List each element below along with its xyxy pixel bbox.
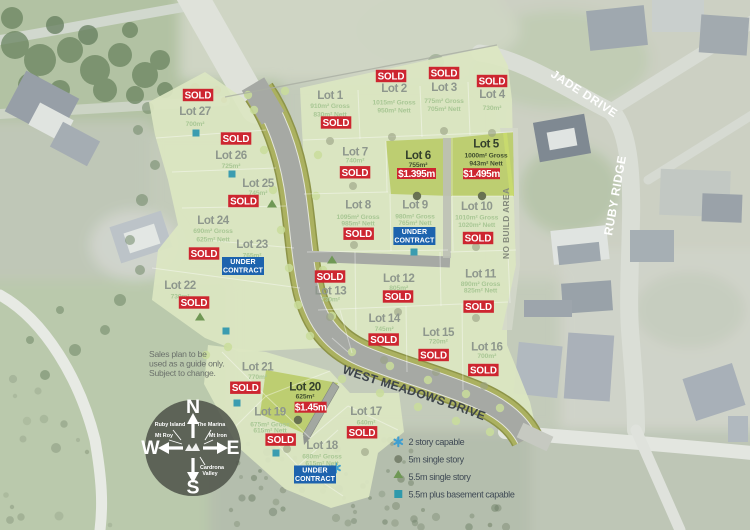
svg-text:950m² Nett: 950m² Nett	[377, 108, 411, 115]
svg-text:Lot 24: Lot 24	[197, 214, 229, 227]
svg-text:Lot 16: Lot 16	[471, 341, 503, 354]
svg-text:NO BUILD AREA: NO BUILD AREA	[501, 188, 511, 259]
svg-text:UNDER: UNDER	[230, 259, 255, 266]
svg-text:825m² Nett: 825m² Nett	[464, 288, 498, 295]
svg-text:640m²: 640m²	[357, 420, 377, 427]
svg-text:745m²: 745m²	[375, 326, 395, 333]
svg-text:Lot 20: Lot 20	[289, 381, 320, 394]
svg-text:SOLD: SOLD	[378, 72, 405, 83]
svg-text:SOLD: SOLD	[385, 292, 412, 303]
svg-text:Lot 8: Lot 8	[345, 199, 371, 212]
svg-text:5.5m single story: 5.5m single story	[409, 472, 472, 482]
svg-text:SOLD: SOLD	[191, 249, 218, 260]
svg-text:SOLD: SOLD	[370, 335, 397, 346]
svg-text:Lot 10: Lot 10	[461, 200, 492, 213]
svg-text:Ruby Island: Ruby Island	[155, 422, 186, 428]
svg-text:Lot 17: Lot 17	[350, 405, 381, 418]
svg-text:Lot 25: Lot 25	[242, 177, 274, 190]
svg-text:SOLD: SOLD	[479, 77, 506, 88]
svg-text:765m² Nett: 765m² Nett	[398, 220, 432, 227]
svg-text:1015m² Gross: 1015m² Gross	[372, 100, 415, 107]
svg-text:943m² Nett: 943m² Nett	[469, 161, 503, 168]
svg-text:5m single story: 5m single story	[409, 455, 465, 465]
svg-text:SOLD: SOLD	[470, 366, 497, 377]
svg-text:910m² Gross: 910m² Gross	[310, 103, 350, 110]
svg-text:740m²: 740m²	[346, 158, 366, 165]
svg-text:Lot 19: Lot 19	[254, 406, 286, 419]
svg-text:The Marina: The Marina	[197, 422, 226, 428]
svg-text:CONTRACT: CONTRACT	[223, 268, 264, 275]
svg-text:730m²: 730m²	[321, 297, 341, 304]
svg-text:Valley: Valley	[202, 471, 217, 477]
svg-text:UNDER: UNDER	[402, 229, 427, 236]
svg-text:SOLD: SOLD	[342, 168, 369, 179]
svg-text:CONTRACT: CONTRACT	[295, 476, 336, 483]
svg-text:Lot 2: Lot 2	[381, 82, 406, 95]
svg-text:SOLD: SOLD	[230, 197, 257, 208]
svg-text:SOLD: SOLD	[465, 302, 492, 313]
svg-text:SOLD: SOLD	[181, 298, 208, 309]
svg-text:W: W	[141, 437, 160, 459]
svg-text:SOLD: SOLD	[185, 91, 212, 102]
svg-text:680m² Gross: 680m² Gross	[302, 454, 342, 461]
svg-text:SOLD: SOLD	[431, 69, 458, 80]
svg-text:SOLD: SOLD	[323, 118, 350, 129]
svg-text:SOLD: SOLD	[345, 229, 372, 240]
svg-text:Mt Roy: Mt Roy	[155, 433, 173, 439]
svg-text:775m² Gross: 775m² Gross	[424, 98, 464, 105]
svg-text:Lot 22: Lot 22	[164, 279, 195, 292]
svg-text:N: N	[186, 396, 200, 418]
svg-text:Lot 14: Lot 14	[368, 312, 400, 325]
svg-text:S: S	[186, 477, 199, 499]
svg-text:625m²: 625m²	[296, 394, 316, 401]
svg-text:625m² Nett: 625m² Nett	[196, 237, 230, 244]
svg-text:SOLD: SOLD	[465, 234, 492, 245]
svg-text:770m²: 770m²	[248, 374, 268, 381]
svg-text:725m²: 725m²	[222, 163, 242, 170]
svg-text:SOLD: SOLD	[349, 428, 376, 439]
svg-text:Lot 4: Lot 4	[479, 88, 505, 101]
svg-text:UNDER: UNDER	[302, 468, 327, 475]
svg-text:1010m² Gross: 1010m² Gross	[455, 215, 498, 222]
svg-text:700m²: 700m²	[477, 353, 497, 360]
svg-text:$1.395m: $1.395m	[398, 169, 435, 180]
svg-text:Lot 1: Lot 1	[317, 89, 343, 102]
svg-text:Lot 6: Lot 6	[405, 149, 431, 162]
svg-text:Lot 5: Lot 5	[473, 138, 499, 151]
svg-text:SOLD: SOLD	[420, 351, 447, 362]
svg-text:Lot 26: Lot 26	[215, 149, 247, 162]
svg-text:$1.495m: $1.495m	[463, 169, 500, 180]
svg-text:used as a guide only.: used as a guide only.	[149, 359, 224, 369]
svg-text:Lot 21: Lot 21	[242, 360, 274, 373]
svg-text:Lot 15: Lot 15	[423, 326, 455, 339]
svg-text:Mt Iron: Mt Iron	[209, 433, 227, 439]
svg-text:Lot 9: Lot 9	[402, 199, 428, 212]
svg-text:Sales plan to be: Sales plan to be	[149, 349, 207, 359]
svg-text:700m²: 700m²	[186, 121, 206, 128]
svg-text:Lot 27: Lot 27	[179, 105, 210, 118]
svg-text:$1.45m: $1.45m	[295, 403, 327, 414]
svg-text:SOLD: SOLD	[223, 134, 250, 145]
svg-text:SOLD: SOLD	[232, 383, 259, 394]
svg-text:1000m² Gross: 1000m² Gross	[464, 153, 507, 160]
svg-text:730m²: 730m²	[483, 105, 503, 112]
svg-text:1020m² Nett: 1020m² Nett	[458, 222, 496, 229]
svg-text:Lot 3: Lot 3	[431, 81, 457, 94]
svg-text:CONTRACT: CONTRACT	[394, 238, 435, 245]
svg-text:SOLD: SOLD	[317, 272, 344, 283]
svg-text:Lot 23: Lot 23	[236, 238, 268, 251]
svg-text:720m²: 720m²	[429, 339, 449, 346]
svg-text:Subject to change.: Subject to change.	[149, 368, 216, 378]
svg-text:E: E	[226, 437, 239, 459]
svg-text:985m² Nett: 985m² Nett	[341, 221, 375, 228]
svg-text:690m² Gross: 690m² Gross	[193, 228, 233, 235]
svg-text:2 story capable: 2 story capable	[409, 437, 465, 447]
svg-text:5.5m plus basement capable: 5.5m plus basement capable	[409, 490, 515, 500]
svg-text:Lot 11: Lot 11	[465, 268, 497, 281]
svg-text:Lot 18: Lot 18	[306, 439, 338, 452]
svg-text:Lot 12: Lot 12	[383, 272, 414, 285]
svg-text:705m² Nett: 705m² Nett	[427, 106, 461, 113]
svg-text:SOLD: SOLD	[267, 435, 294, 446]
